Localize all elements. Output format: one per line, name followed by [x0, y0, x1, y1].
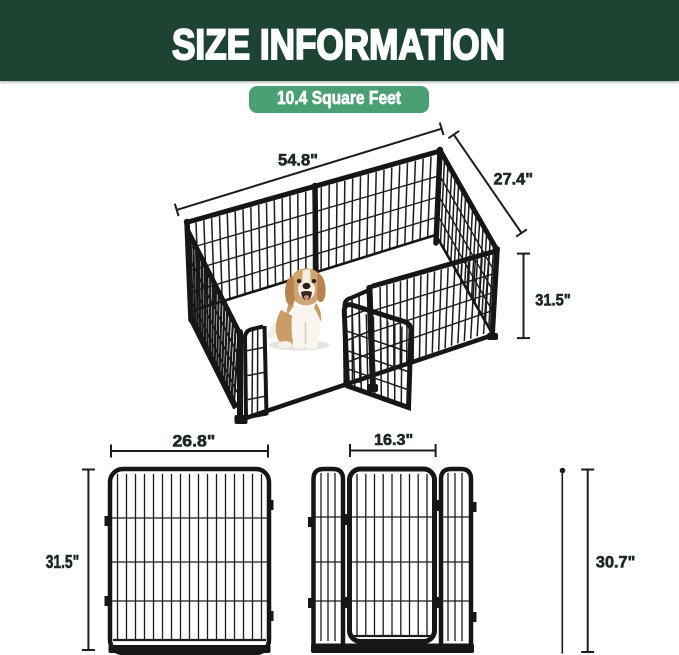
- svg-text:16.3": 16.3": [374, 432, 413, 449]
- svg-text:54.8": 54.8": [278, 152, 318, 170]
- svg-text:10.4 Square Feet: 10.4 Square Feet: [277, 88, 401, 108]
- svg-text:31.5": 31.5": [535, 290, 570, 309]
- svg-text:30.7": 30.7": [596, 553, 635, 572]
- svg-text:27.4": 27.4": [494, 171, 534, 189]
- svg-text:26.8": 26.8": [173, 433, 216, 451]
- svg-text:31.5": 31.5": [46, 552, 79, 572]
- svg-text:SIZE INFORMATION: SIZE INFORMATION: [172, 21, 505, 69]
